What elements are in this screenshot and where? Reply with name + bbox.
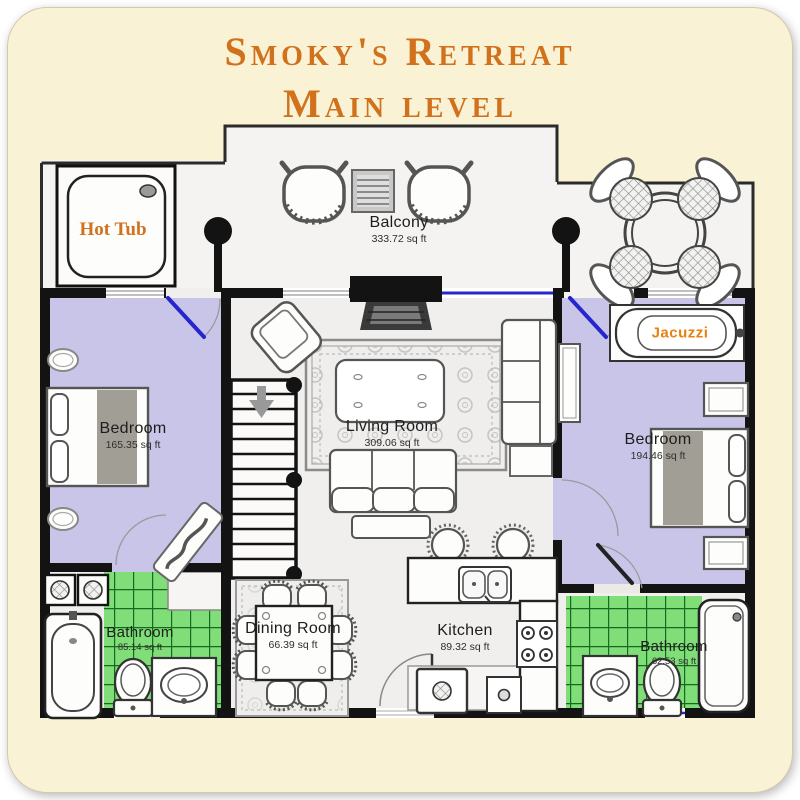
room-label-bedroom-left: Bedroom 165.35 sq ft xyxy=(99,420,166,451)
toilet-icon xyxy=(114,659,152,716)
room-area: 165.35 sq ft xyxy=(99,439,166,451)
room-name: Bedroom xyxy=(624,431,691,449)
kitchen-sink-icon xyxy=(459,567,511,602)
title-line-2: Main level xyxy=(0,78,800,130)
room-area: 309.06 sq ft xyxy=(346,437,438,449)
room-label-kitchen: Kitchen 89.32 sq ft xyxy=(437,622,492,653)
room-label-bathroom-left: Bathroom 85.14 sq ft xyxy=(106,624,173,653)
floor-plan-screenshot: Smoky's Retreat Main level Balcony 333.7… xyxy=(0,0,800,800)
hot-tub-label: Hot Tub xyxy=(79,219,146,241)
fridge-icon xyxy=(417,669,467,713)
room-area: 194.46 sq ft xyxy=(624,450,691,462)
stove-icon xyxy=(517,621,557,667)
side-table-icon xyxy=(510,446,552,476)
post-icon xyxy=(552,217,580,245)
room-label-bedroom-right: Bedroom 194.46 sq ft xyxy=(624,431,691,462)
room-name: Balcony xyxy=(369,214,428,232)
room-label-bathroom-right: Bathroom 62.53 sq ft xyxy=(640,638,707,667)
room-name: Dining Room xyxy=(245,620,341,638)
room-name: Living Room xyxy=(346,418,438,436)
dining-chair-icon xyxy=(266,681,296,710)
room-area: 66.39 sq ft xyxy=(245,639,341,651)
side-sofa-icon xyxy=(502,320,556,476)
room-area: 62.53 sq ft xyxy=(640,656,707,667)
room-name: Bathroom xyxy=(106,624,173,641)
title-line-1: Smoky's Retreat xyxy=(0,26,800,78)
jacuzzi-label: Jacuzzi xyxy=(652,325,709,342)
pillow-icon xyxy=(51,441,68,482)
room-label-dining-room: Dining Room 66.39 sq ft xyxy=(245,620,341,651)
dishwasher-icon xyxy=(487,677,521,713)
room-area: 85.14 sq ft xyxy=(106,642,173,653)
dresser-icon xyxy=(559,344,580,422)
stairs-icon xyxy=(231,377,302,582)
room-name: Kitchen xyxy=(437,622,492,640)
pillow-icon xyxy=(729,481,745,522)
balcony-table-icon xyxy=(352,170,394,212)
room-area: 333.72 sq ft xyxy=(369,233,428,245)
toilet-icon xyxy=(643,659,681,716)
room-name: Bathroom xyxy=(640,638,707,655)
room-label-balcony: Balcony 333.72 sq ft xyxy=(369,214,428,245)
room-area: 89.32 sq ft xyxy=(437,641,492,653)
room-name: Bedroom xyxy=(99,420,166,438)
vanity-sink-icon xyxy=(583,656,637,716)
rocking-chair-icon xyxy=(282,163,346,222)
bathtub-icon xyxy=(45,611,101,718)
room-label-living-room: Living Room 309.06 sq ft xyxy=(346,418,438,449)
plan-title: Smoky's Retreat Main level xyxy=(0,26,800,130)
pillow-icon xyxy=(729,435,745,476)
ottoman-icon xyxy=(352,516,430,538)
pillow-icon xyxy=(51,394,68,435)
rocking-chair-icon xyxy=(407,163,471,222)
vanity-sink-icon xyxy=(152,658,216,716)
post-icon xyxy=(204,217,232,245)
dining-chair-icon xyxy=(297,681,327,710)
coffee-table-icon xyxy=(336,360,444,422)
